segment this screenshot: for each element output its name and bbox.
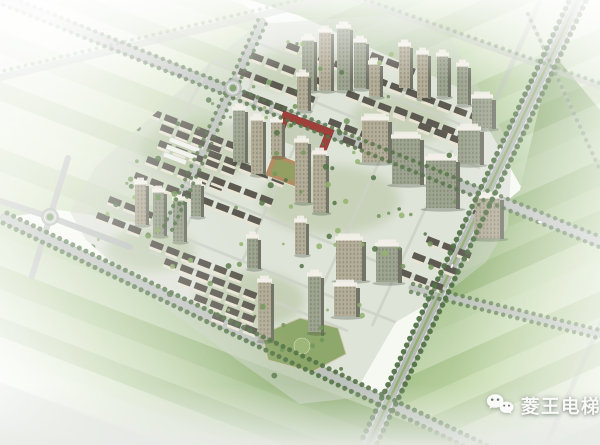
haze-layer xyxy=(0,0,600,445)
aerial-rendering: 菱王电梯 xyxy=(0,0,600,445)
wechat-icon xyxy=(485,392,515,419)
rendering-canvas xyxy=(0,0,600,445)
watermark-text: 菱王电梯 xyxy=(521,393,600,419)
watermark: 菱王电梯 xyxy=(485,392,600,419)
